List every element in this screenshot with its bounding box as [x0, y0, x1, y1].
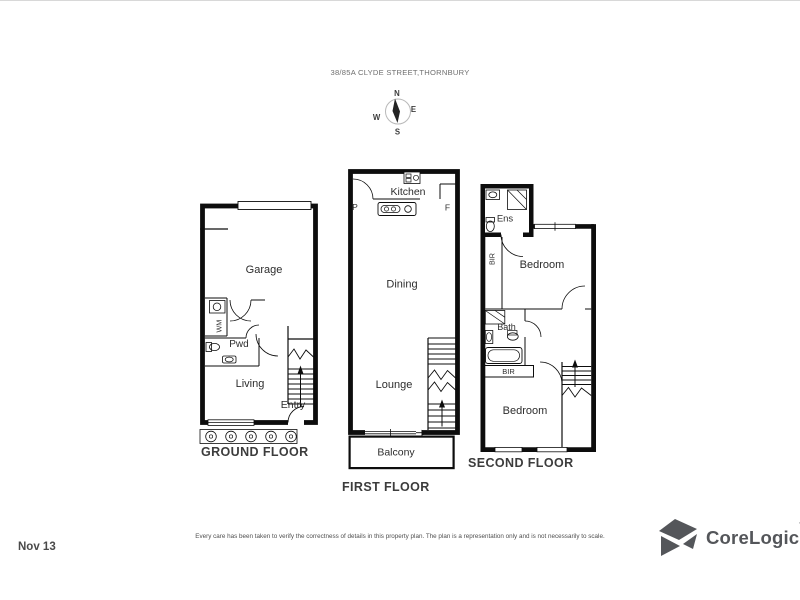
fridge-nook: [440, 184, 456, 199]
bedroom-lower-label: Bedroom: [503, 405, 548, 417]
entry-opening: [288, 419, 304, 425]
ground-outer-walls: [203, 206, 316, 423]
pantry-door-arc-icon: [353, 179, 373, 199]
ensuite-door-arc-icon: [501, 235, 523, 257]
second-floor-label: SECOND FLOOR: [468, 456, 574, 470]
brand-name: CoreLogic: [706, 527, 799, 548]
cooktop-island-icon: [378, 203, 416, 216]
first-floor-plan: Kitchen P F Dining Lounge Balcony: [346, 167, 466, 475]
fridge-label: F: [445, 203, 450, 213]
stairs-break-icon: [428, 382, 456, 392]
compass-west: W: [373, 113, 381, 122]
dining-label: Dining: [386, 279, 417, 291]
stairs-break-icon: [562, 388, 591, 398]
pantry-label: P: [352, 202, 358, 212]
kitchen-sink-icon: [404, 172, 420, 184]
entry-label: Entry: [281, 399, 306, 411]
toilet-icon: [486, 218, 495, 232]
lounge-label: Lounge: [376, 379, 413, 391]
corelogic-logo: CoreLogic': [659, 518, 800, 558]
powder-label: Pwd: [229, 339, 248, 350]
ensuite-basin-icon: [486, 190, 500, 200]
first-floor-label: FIRST FLOOR: [342, 480, 430, 494]
robe-upper-label: BIR: [488, 253, 497, 265]
first-outer-walls: [351, 172, 458, 433]
ensuite-label: Ens: [497, 214, 514, 225]
bathtub-icon: [486, 348, 523, 364]
bath-label: Bath: [497, 322, 516, 332]
property-address: 38/85A CLYDE STREET,THORNBURY: [0, 68, 800, 77]
front-window: [208, 420, 254, 426]
compass-north: N: [394, 89, 400, 98]
ground-floor-label: GROUND FLOOR: [201, 445, 309, 459]
stairs-icon: [428, 338, 456, 430]
ensuite-walls: [483, 186, 532, 235]
compass-east: E: [411, 105, 416, 114]
robe-lower-label: BIR: [502, 367, 515, 376]
shrub-row-icon: [200, 430, 297, 444]
washing-machine-icon: [210, 301, 226, 314]
laundry-label: WM: [215, 320, 224, 333]
second-floor-plan: Ens BIR Bedroom Bath BIR Bedroom: [478, 181, 602, 461]
basin-icon: [206, 343, 212, 352]
compass-needle-icon: [393, 99, 401, 124]
door-arc-icon: [246, 325, 259, 338]
floorplan-page: 38/85A CLYDE STREET,THORNBURY N E S W: [0, 0, 800, 600]
stairs-break-icon: [288, 349, 314, 359]
garage-door: [238, 202, 311, 210]
date-label: Nov 13: [18, 541, 56, 553]
balcony-label: Balcony: [377, 447, 415, 459]
ensuite-door-opening: [501, 233, 523, 238]
corelogic-logo-icon: [659, 518, 699, 558]
garage-double-door-icon: [230, 300, 265, 321]
stairs-break-icon: [428, 370, 456, 380]
basin-icon: [485, 331, 493, 344]
ground-floor-plan: Garage WM Pwd Living Entry: [198, 193, 322, 449]
kitchen-label: Kitchen: [390, 186, 425, 198]
top-window: [535, 222, 576, 230]
stairs-icon: [540, 360, 591, 448]
stairs-icon: [288, 326, 316, 407]
compass-south: S: [395, 128, 400, 137]
garage-label: Garage: [246, 264, 283, 276]
compass-icon: N E S W: [367, 85, 429, 141]
landing-door-arc-icon: [540, 362, 562, 384]
bedroom-door-arc-icon: [562, 286, 585, 309]
shower-icon: [508, 190, 527, 210]
sliding-door-icon: [365, 429, 428, 437]
bedroom-upper-label: Bedroom: [520, 259, 565, 271]
living-label: Living: [236, 378, 265, 390]
bath-door-arc-icon: [525, 321, 541, 337]
